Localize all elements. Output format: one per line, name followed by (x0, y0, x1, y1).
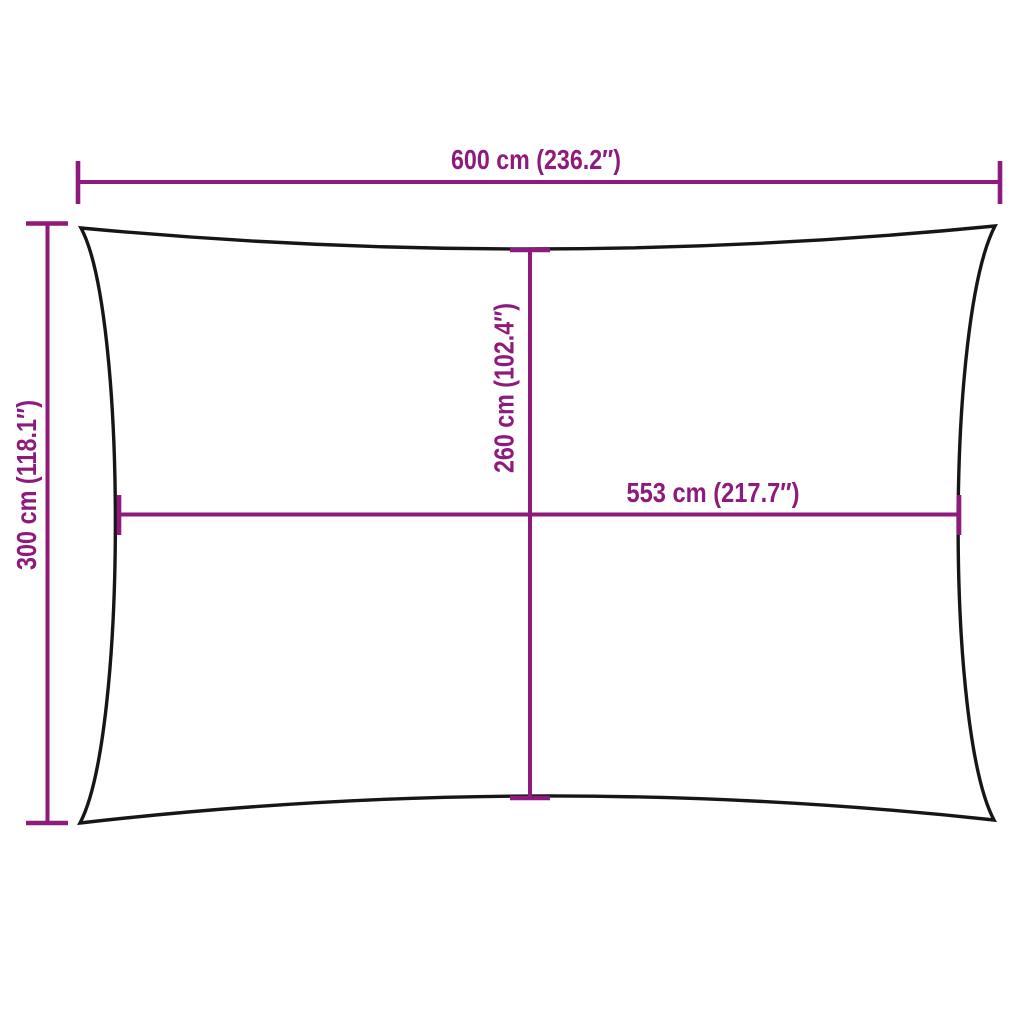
svg-text:300 cm (118.1″): 300 cm (118.1″) (11, 400, 42, 570)
svg-text:600 cm (236.2″): 600 cm (236.2″) (451, 144, 621, 175)
svg-text:553 cm (217.7″): 553 cm (217.7″) (627, 477, 800, 508)
svg-text:260 cm (102.4″): 260 cm (102.4″) (489, 303, 520, 473)
